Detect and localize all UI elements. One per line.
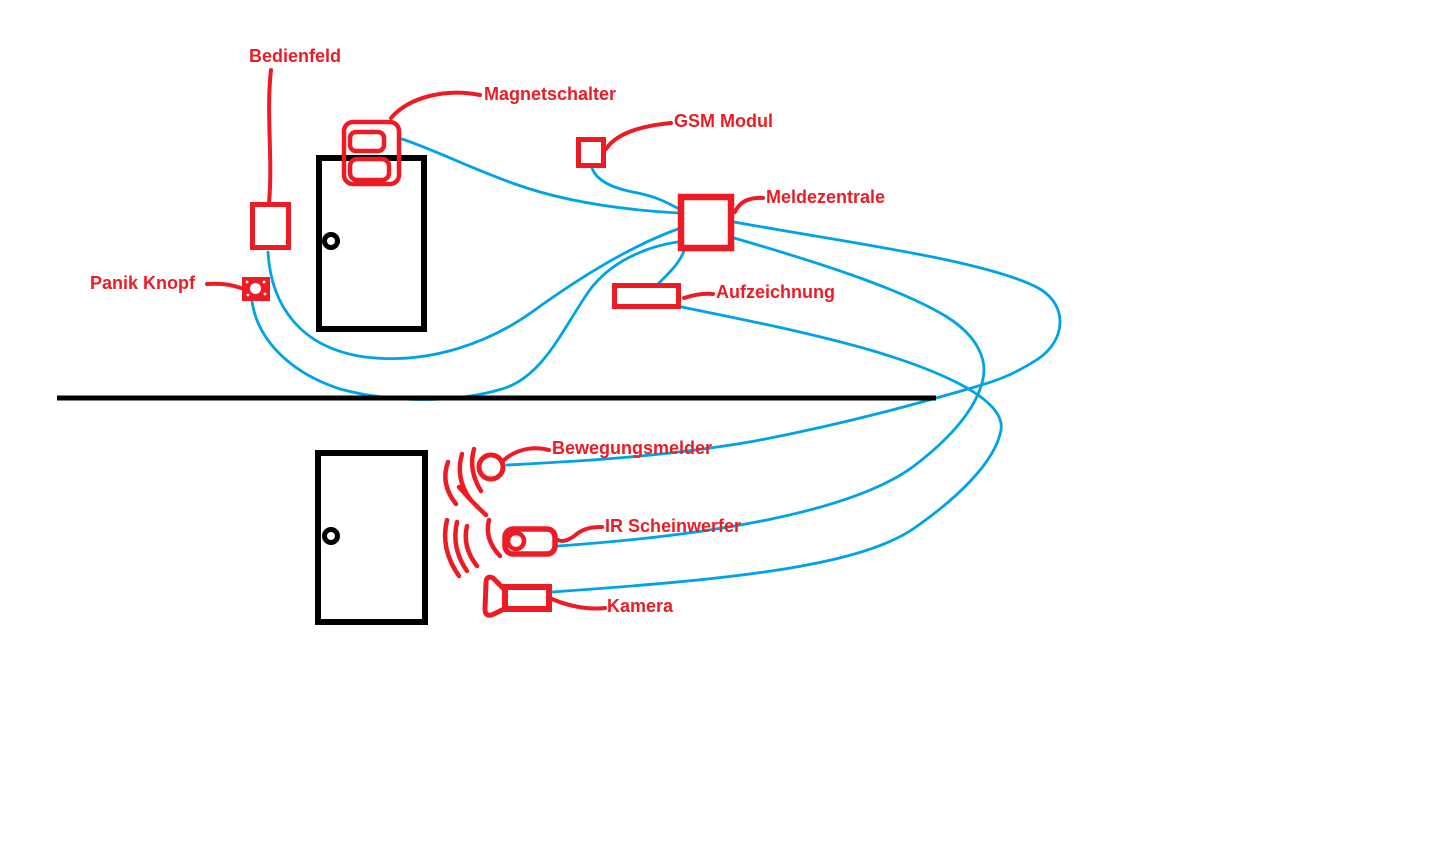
door-lower-knob: [325, 530, 338, 543]
arc: [488, 520, 500, 556]
wire-gsm-meldezentrale: [592, 168, 679, 209]
label-panik-knopf: Panik Knopf: [90, 274, 195, 292]
paint-canvas: Bedienfeld Magnetschalter GSM Modul Meld…: [0, 0, 1446, 860]
kamera-sketch: [485, 577, 549, 615]
ir-scheinwerfer-sketch: [505, 529, 555, 554]
arc: [466, 526, 477, 566]
leader-bedienfeld: [269, 70, 271, 203]
label-ir-scheinwerfer: IR Scheinwerfer: [605, 517, 741, 535]
wire-magnetschalter-meldezentrale: [402, 139, 679, 213]
leader-bewegungsmelder: [504, 448, 549, 460]
label-bedienfeld: Bedienfeld: [249, 47, 341, 65]
bewegungsmelder-circle: [479, 455, 503, 479]
panik-screw: [264, 293, 267, 296]
label-gsm-modul: GSM Modul: [674, 112, 773, 130]
leader-meldezentrale: [735, 198, 763, 212]
panik-button: [242, 277, 270, 301]
wire-meldezentrale-aufzeichnung: [658, 251, 684, 284]
arc: [445, 462, 456, 504]
panik-screw: [263, 281, 266, 284]
leader-gsm: [606, 123, 671, 149]
leader-magnetschalter: [391, 93, 480, 118]
leader-panik: [207, 284, 241, 288]
wire-panik-meldezentrale: [252, 242, 677, 400]
door-upper-knob: [325, 235, 338, 248]
label-kamera: Kamera: [607, 597, 673, 615]
label-bewegungsmelder: Bewegungsmelder: [552, 439, 712, 457]
label-meldezentrale: Meldezentrale: [766, 188, 885, 206]
bedienfeld-box: [253, 205, 289, 248]
label-magnetschalter: Magnetschalter: [484, 85, 616, 103]
magnetschalter-contact-top: [350, 132, 384, 151]
aufzeichnung-box: [615, 286, 679, 307]
label-aufzeichnung: Aufzeichnung: [716, 283, 835, 301]
panik-screw: [247, 294, 250, 297]
leader-kamera: [552, 599, 605, 609]
leader-ir: [558, 527, 602, 541]
detection-arcs: [445, 449, 500, 576]
gsm-box: [579, 140, 604, 166]
meldezentrale-box: [681, 197, 731, 248]
kamera-body: [505, 587, 549, 609]
leader-aufzeichnung: [684, 294, 713, 298]
kamera-lens-horn: [485, 577, 504, 615]
ir-lens: [508, 533, 524, 549]
panik-button-center: [250, 283, 261, 294]
panik-screw: [246, 281, 249, 284]
